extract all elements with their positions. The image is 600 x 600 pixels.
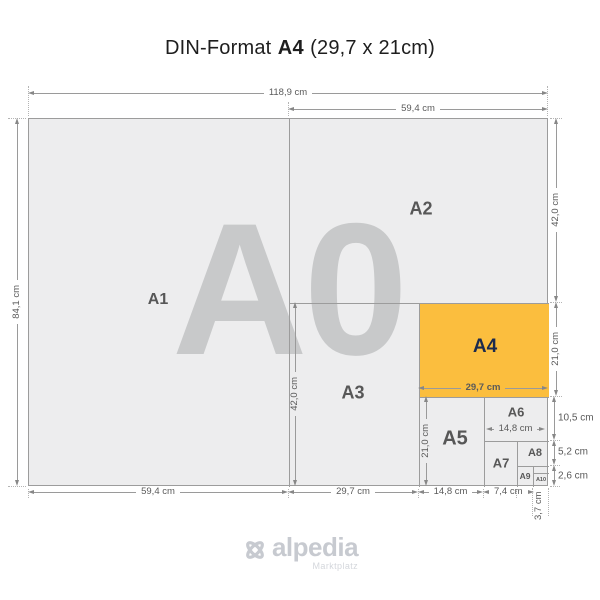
dimension-a0-width: 118,9 cm (28, 88, 548, 98)
title-prefix: DIN-Format (165, 37, 271, 60)
dimension-a6-height: 10,5 cm (558, 413, 594, 424)
arrow-down-icon (15, 480, 19, 486)
guide-line (8, 486, 26, 487)
region-label-a6: A6 (508, 405, 525, 420)
dimension-a5-height: 21,0 cm (421, 396, 431, 486)
dimension-a0-height: 84,1 cm (12, 118, 22, 486)
a0-watermark: A0 (172, 195, 404, 383)
divider-a5-a6 (484, 397, 485, 487)
arrow-right-icon (542, 91, 548, 95)
din-format-diagram: DIN-Format A4 (29,7 x 21cm) A0 A1 A2 A3 … (0, 0, 600, 600)
arrow-right-icon (542, 386, 548, 390)
dimension-a4-width: 29,7 cm (418, 383, 548, 393)
alpedia-knot-icon (242, 537, 268, 568)
dimension-a1-width: 59,4 cm (28, 487, 288, 497)
dimension-a10-height: 2,6 cm (558, 471, 588, 482)
region-label-a3: A3 (341, 383, 364, 404)
a0-sheet: A0 A1 A2 A3 A4 A5 A6 A7 A8 A9 A10 (28, 118, 548, 486)
dimension-a4-height: 21,0 cm (551, 302, 561, 396)
dimension-a5-width: 14,8 cm (418, 487, 483, 497)
arrow-down-icon (293, 480, 297, 486)
divider-a10-top (533, 473, 549, 474)
guide-line (548, 488, 549, 516)
region-label-a5: A5 (442, 428, 468, 451)
page-title: DIN-Format A4 (29,7 x 21cm) (0, 33, 600, 63)
region-label-a9: A9 (520, 471, 531, 481)
dimension-a10-width: 3,7 cm (534, 490, 544, 520)
arrow-right-icon (542, 107, 548, 111)
alpedia-logo: alpedia Marktplatz (0, 534, 600, 571)
region-label-a2: A2 (409, 199, 432, 220)
guide-line (550, 486, 560, 487)
region-label-a4: A4 (473, 336, 497, 358)
dimension-a2-width: 59,4 cm (288, 104, 548, 114)
arrow-down-icon (424, 480, 428, 486)
arrow-down-icon (552, 480, 556, 486)
divider-a3-a4 (419, 303, 420, 487)
logo-tagline: Marktplatz (272, 561, 358, 571)
title-format-emphasis: A4 (278, 37, 304, 60)
region-label-a7: A7 (493, 456, 510, 471)
dimension-a8-height: 5,2 cm (558, 447, 588, 458)
dimension-a3-height: 42,0 cm (290, 302, 300, 486)
region-label-a1: A1 (148, 291, 168, 309)
arrow-right-icon (539, 427, 545, 431)
dimension-a7-width: 7,4 cm (483, 487, 516, 497)
region-label-a8: A8 (528, 447, 542, 459)
divider-a9-a10 (533, 466, 534, 487)
logo-wordmark: alpedia (272, 534, 358, 560)
title-size-suffix: (29,7 x 21cm) (310, 37, 435, 60)
dimension-a3-width: 29,7 cm (288, 487, 418, 497)
dimension-a2-height: 42,0 cm (551, 118, 561, 302)
divider-a7-a8 (517, 441, 518, 487)
region-label-a10: A10 (536, 477, 546, 483)
dimension-a6-width: 14,8 cm (486, 424, 545, 434)
